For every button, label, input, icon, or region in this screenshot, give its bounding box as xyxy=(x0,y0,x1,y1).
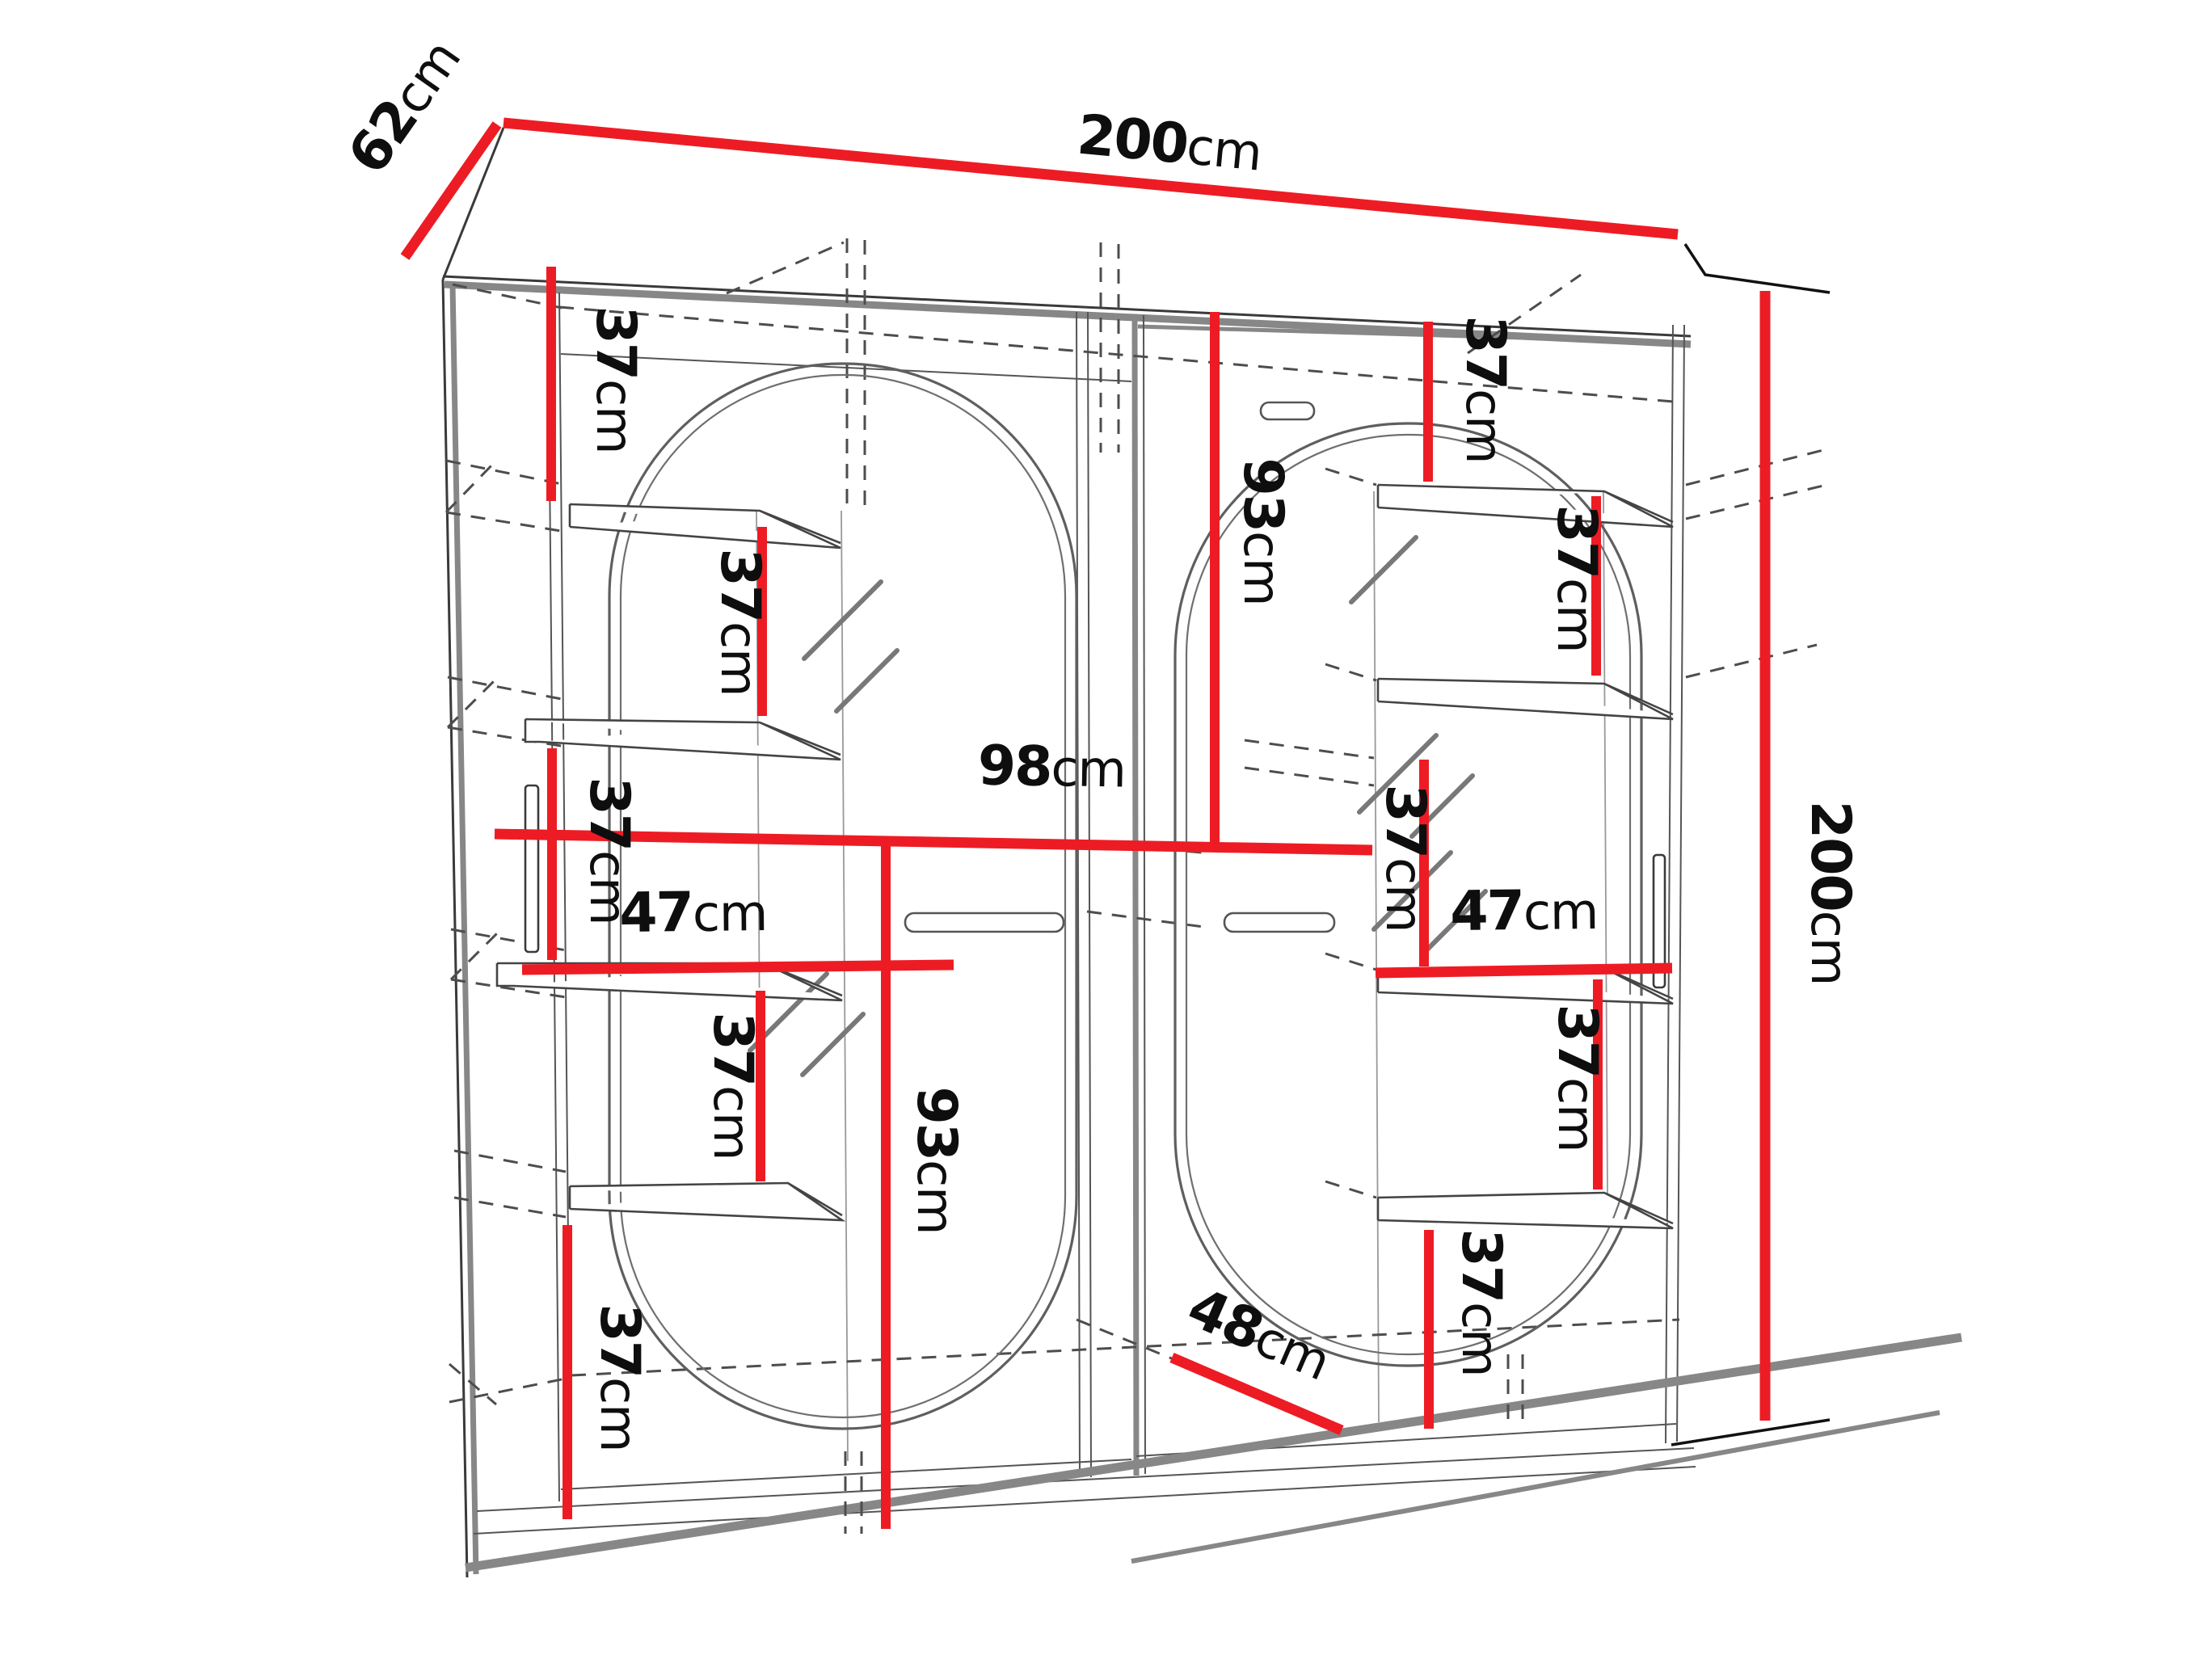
dim-label-left-37cm-2: 37cm xyxy=(708,548,772,696)
left-floor-proj xyxy=(449,1379,566,1402)
dim-label-width-200cm: 200cm xyxy=(1075,103,1265,184)
left-door-right-stile-b xyxy=(1088,312,1091,1477)
dim-line-depth-top xyxy=(405,124,497,257)
hanging-rail-icon xyxy=(905,913,1064,932)
dim-label-height-200cm: 200cm xyxy=(1798,801,1862,985)
right-column-partition xyxy=(1374,491,1379,1422)
hanging-rail-icon xyxy=(1261,402,1314,419)
right-mid-dash-b xyxy=(1245,768,1374,785)
dim-label-right-47cm: 47cm xyxy=(1450,878,1599,944)
left-column-partition xyxy=(841,511,848,1461)
dim-label-93cm-left: 93cm xyxy=(904,1086,968,1234)
dim-connector-top-right xyxy=(1685,244,1830,293)
left-shelf2-proj-a xyxy=(448,677,566,700)
right-shelf1-outside-proj-b xyxy=(1686,485,1826,519)
left-shelf2-proj-diag xyxy=(448,679,496,727)
dim-label-left-47cm: 47cm xyxy=(619,880,768,945)
right-door-left-stile xyxy=(1135,315,1136,1476)
left-shelf3-proj-diag xyxy=(451,931,499,979)
right-shelf2-stub xyxy=(1325,664,1376,680)
dim-label-98cm: 98cm xyxy=(977,734,1126,800)
right-door-left-stile-inner xyxy=(1144,315,1145,1474)
mirror-glare-icon xyxy=(750,582,897,1075)
right-shelf1-stub xyxy=(1325,469,1376,485)
dim-label-right-37cm-4: 37cm xyxy=(1545,1004,1609,1152)
dim-label-right-37cm-2: 37cm xyxy=(1544,504,1608,652)
right-shelf4-stub xyxy=(1325,1181,1376,1198)
hidden-top-left-diagonal xyxy=(727,242,844,293)
dim-label-93cm-right: 93cm xyxy=(1231,457,1295,605)
shelf-slab xyxy=(525,719,841,760)
mid-rail-back-dash xyxy=(1087,912,1210,928)
dim-connector-bottom-right xyxy=(1671,1420,1830,1445)
diagram-canvas: 62cm 200cm 200cm 37cm 37cm 37cm 47cm 37c… xyxy=(0,0,2212,1659)
shelf-slab xyxy=(1378,485,1673,527)
left-shelf2-proj-b xyxy=(448,727,566,747)
cabinet-carcass xyxy=(443,128,1961,1577)
dim-label-right-37cm-5: 37cm xyxy=(1449,1228,1513,1376)
left-door-handle xyxy=(525,785,538,952)
dim-label-left-37cm-5: 37cm xyxy=(588,1303,651,1451)
dim-label-left-37cm-1: 37cm xyxy=(584,305,647,453)
dim-label-depth-62cm: 62cm xyxy=(336,27,474,185)
shelf-slab xyxy=(570,504,841,548)
right-shelf2-outside-proj xyxy=(1686,645,1817,677)
wardrobe-dimension-diagram: 62cm 200cm 200cm 37cm 37cm 37cm 47cm 37c… xyxy=(0,0,2212,1659)
dim-label-right-37cm-1: 37cm xyxy=(1453,315,1517,463)
right-door-frame-a xyxy=(1666,325,1673,1443)
right-door-frame-b xyxy=(1677,325,1684,1442)
hanging-rail-icon xyxy=(1224,913,1334,932)
plinth-line-1 xyxy=(477,1448,1694,1511)
dim-label-right-37cm-3: 37cm xyxy=(1373,784,1437,932)
dim-label-left-37cm-4: 37cm xyxy=(701,1012,765,1160)
shelf-slab xyxy=(1378,679,1673,719)
dim-line-right-47 xyxy=(1376,968,1672,973)
left-shelf1-proj-b xyxy=(446,512,566,532)
right-mid-dash-a xyxy=(1245,740,1374,758)
floor-shadow-2 xyxy=(1131,1413,1940,1561)
right-shelf1-outside-proj-a xyxy=(1686,449,1826,485)
right-shelf3-stub xyxy=(1325,954,1376,970)
